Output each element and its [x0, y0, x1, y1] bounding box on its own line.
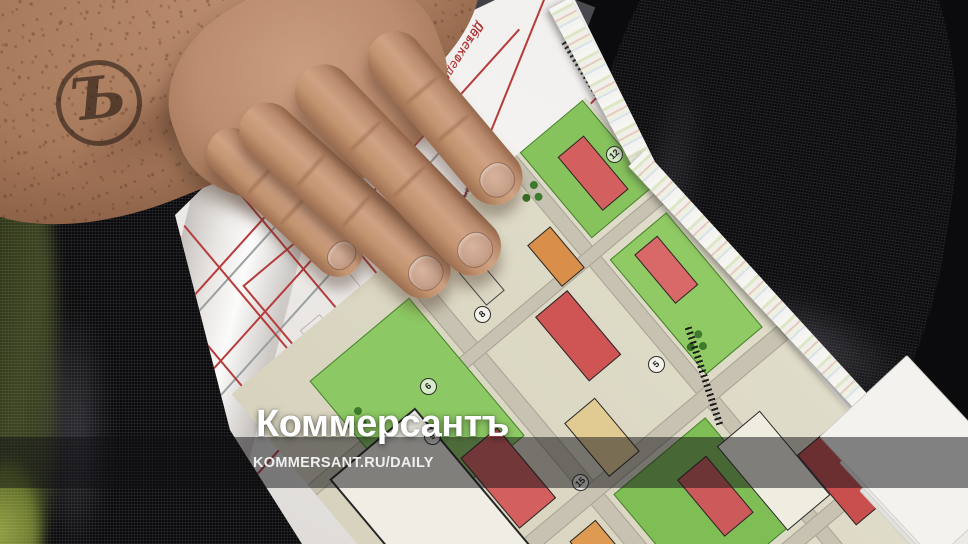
- site-url: KOMMERSANT.RU/DAILY: [253, 455, 434, 471]
- finger-crease: [341, 194, 372, 228]
- watermark-glyph: Ъ: [56, 51, 140, 135]
- shirt-fold-shadow: [40, 300, 110, 544]
- masthead: Коммерсантъ: [256, 403, 509, 446]
- finger-crease: [392, 164, 426, 197]
- finger-crease: [348, 120, 382, 153]
- news-photo: Участок з Нач. школ Нач. Нач. СМР 0 РНВ …: [0, 0, 968, 544]
- finger-crease: [404, 75, 439, 105]
- finger-crease: [435, 112, 470, 142]
- finger-crease: [295, 153, 326, 187]
- fingernail: [473, 156, 521, 204]
